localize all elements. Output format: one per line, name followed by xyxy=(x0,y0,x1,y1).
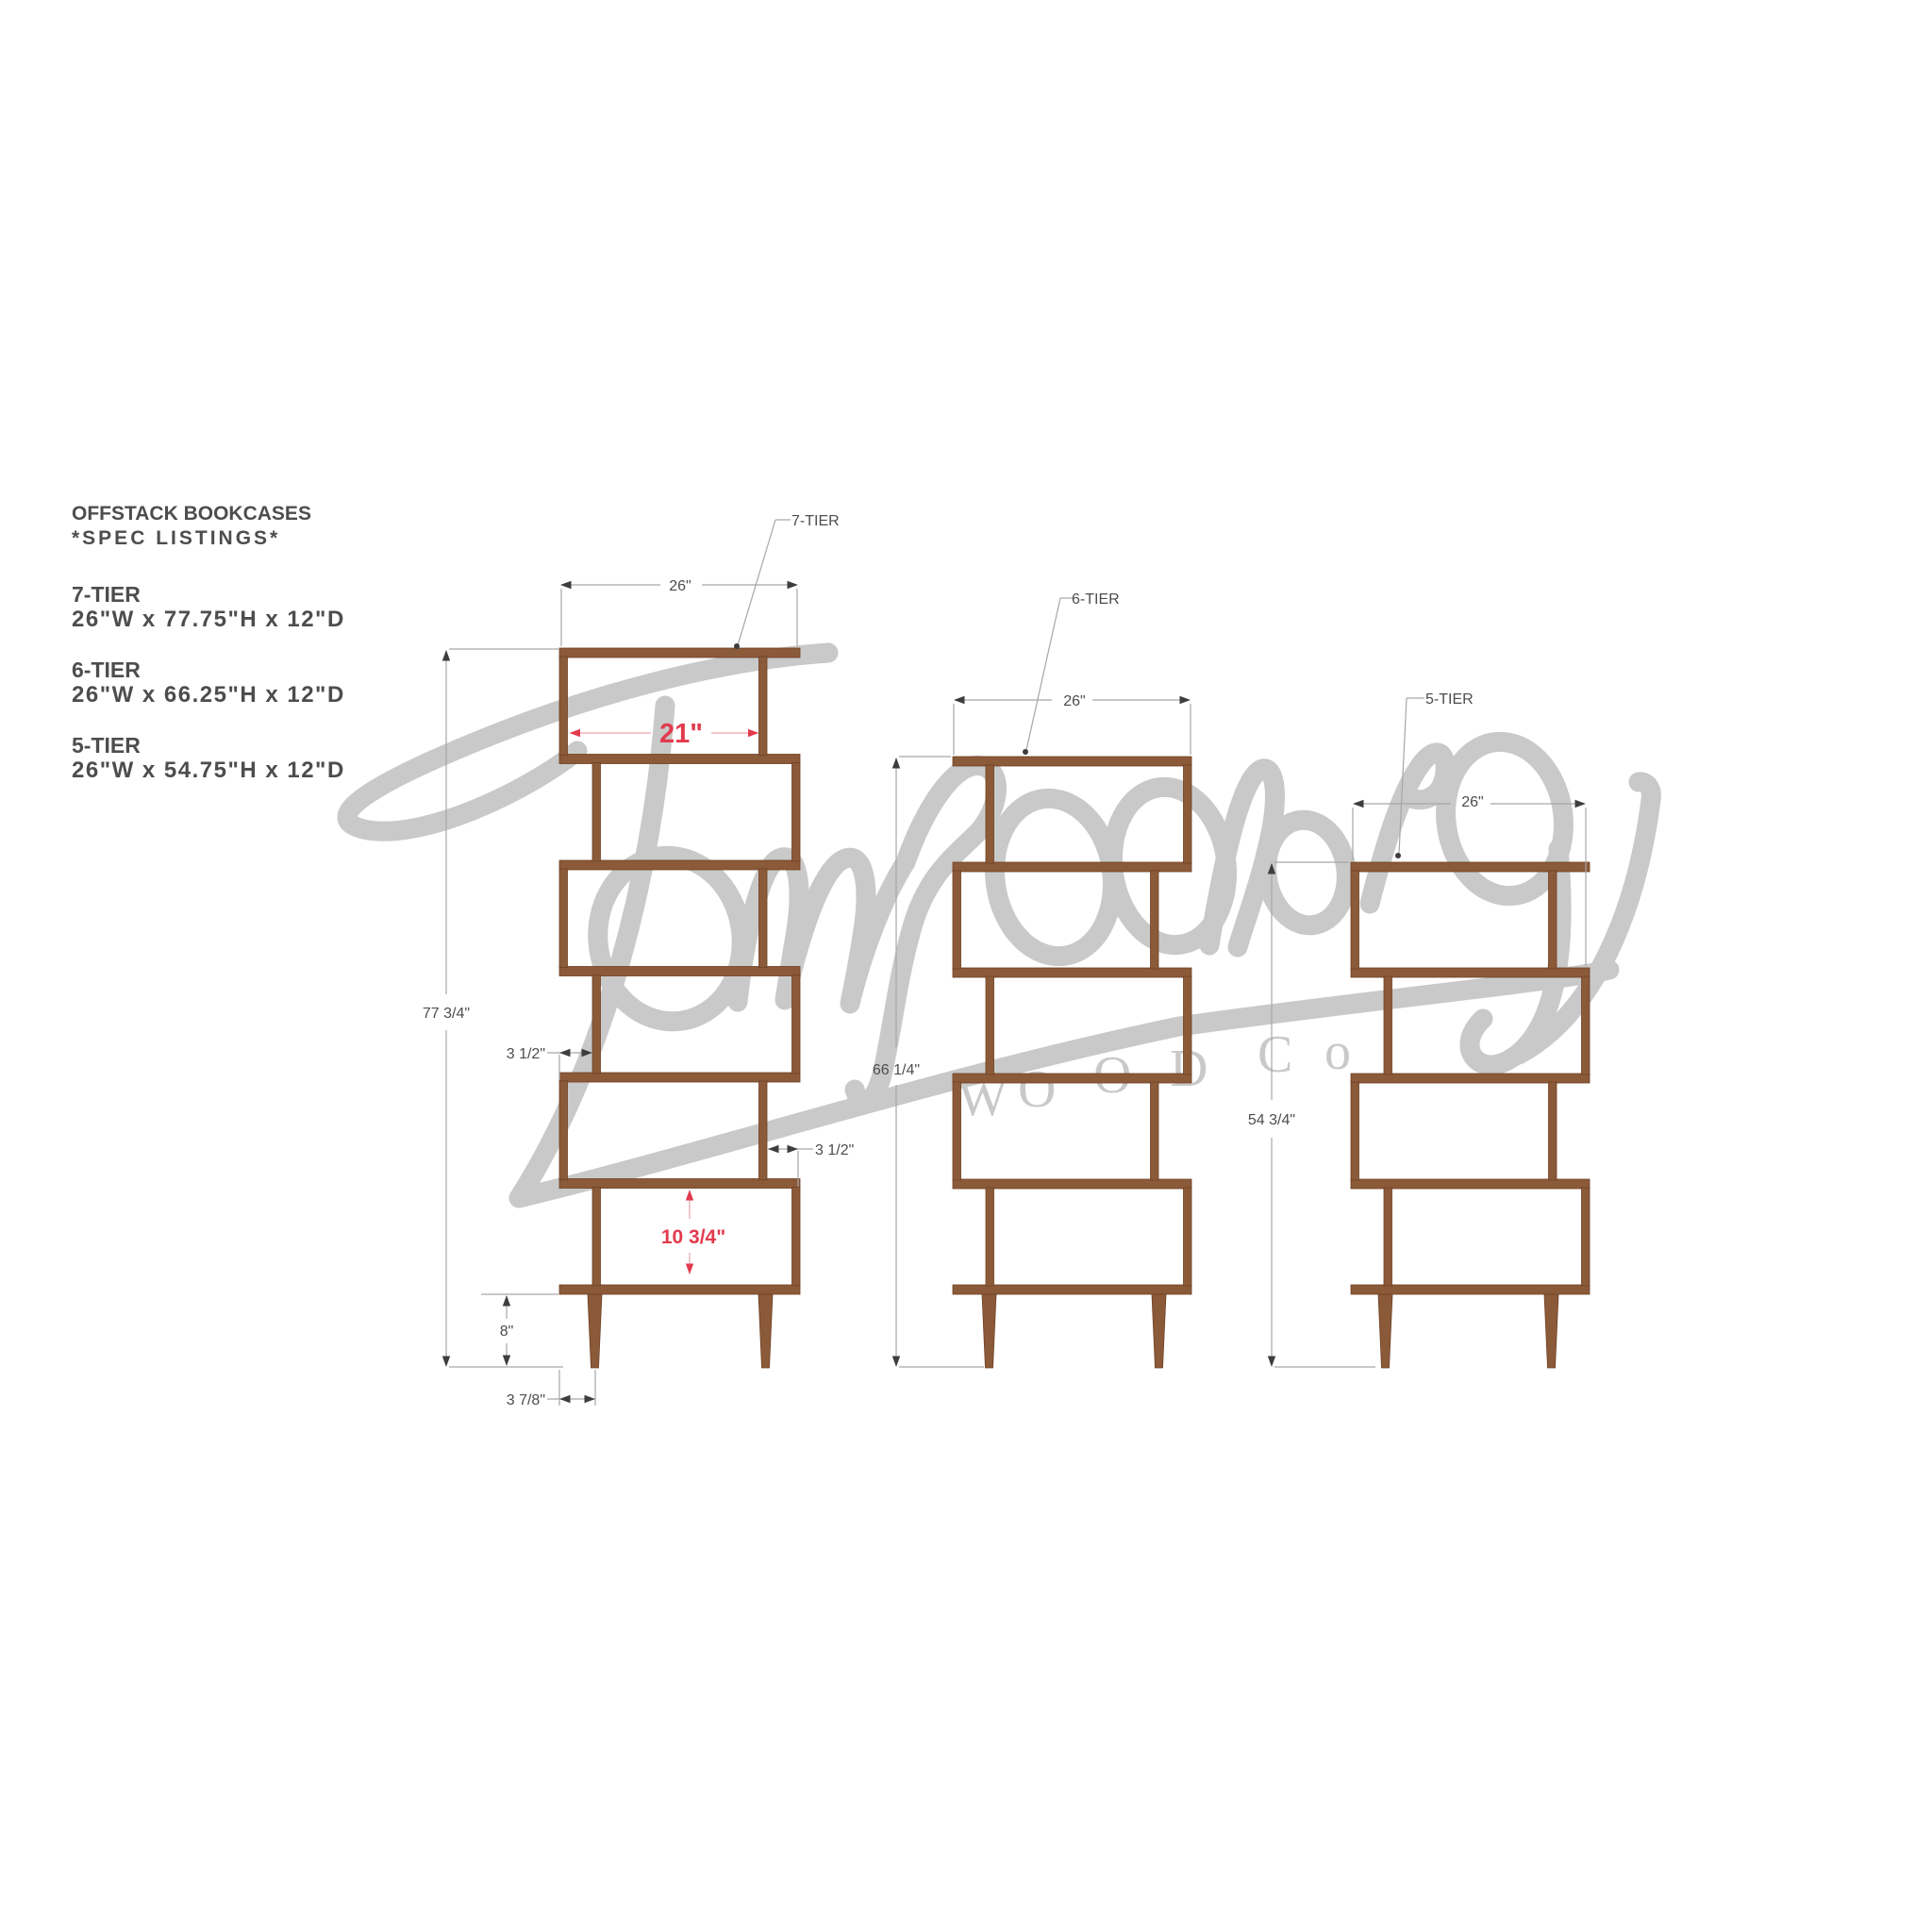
svg-text:O: O xyxy=(1018,1060,1056,1119)
svg-text:3 1/2": 3 1/2" xyxy=(815,1142,854,1158)
svg-text:3 1/2": 3 1/2" xyxy=(507,1046,545,1062)
svg-text:66 1/4": 66 1/4" xyxy=(873,1062,920,1078)
svg-text:26": 26" xyxy=(669,578,691,594)
svg-text:8": 8" xyxy=(500,1324,514,1340)
svg-text:OFFSTACK BOOKCASES: OFFSTACK BOOKCASES xyxy=(72,503,311,525)
svg-text:6-TIER: 6-TIER xyxy=(72,658,141,682)
svg-text:o: o xyxy=(1324,1023,1351,1081)
svg-text:10 3/4": 10 3/4" xyxy=(661,1226,725,1248)
svg-text:26": 26" xyxy=(1063,693,1085,709)
svg-text:26"W x 54.75"H x 12"D: 26"W x 54.75"H x 12"D xyxy=(72,758,345,783)
svg-text:7-TIER: 7-TIER xyxy=(791,513,840,529)
svg-text:21": 21" xyxy=(659,719,703,749)
svg-text:3 7/8": 3 7/8" xyxy=(507,1392,545,1408)
svg-text:7-TIER: 7-TIER xyxy=(72,582,141,607)
svg-text:5-TIER: 5-TIER xyxy=(72,733,141,758)
svg-text:26": 26" xyxy=(1461,794,1483,810)
svg-text:5-TIER: 5-TIER xyxy=(1425,691,1474,708)
svg-text:C: C xyxy=(1257,1025,1292,1084)
svg-text:6-TIER: 6-TIER xyxy=(1072,591,1120,608)
svg-text:*SPEC LISTINGS*: *SPEC LISTINGS* xyxy=(72,527,280,549)
svg-text:54 3/4": 54 3/4" xyxy=(1248,1112,1295,1128)
svg-text:77 3/4": 77 3/4" xyxy=(423,1006,470,1022)
svg-text:26"W x 77.75"H x 12"D: 26"W x 77.75"H x 12"D xyxy=(72,607,345,632)
svg-text:26"W x 66.25"H x 12"D: 26"W x 66.25"H x 12"D xyxy=(72,682,345,708)
